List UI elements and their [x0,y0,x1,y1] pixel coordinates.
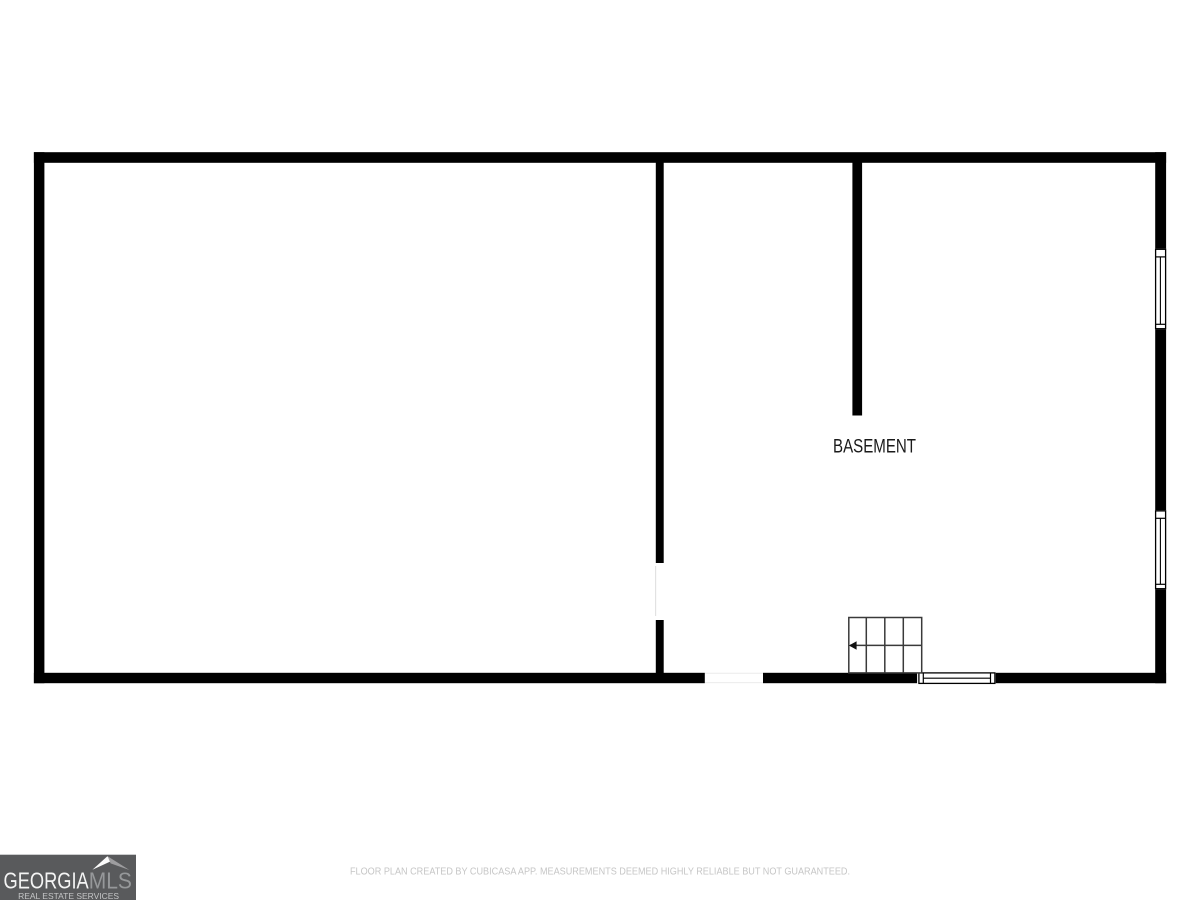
svg-text:GEORGIA: GEORGIA [4,868,90,894]
svg-text:REAL ESTATE SERVICES: REAL ESTATE SERVICES [18,891,119,900]
svg-text:BASEMENT: BASEMENT [833,436,916,458]
svg-text:FLOOR PLAN CREATED BY CUBICASA: FLOOR PLAN CREATED BY CUBICASA APP. MEAS… [350,867,850,878]
svg-text:MLS: MLS [89,868,132,894]
